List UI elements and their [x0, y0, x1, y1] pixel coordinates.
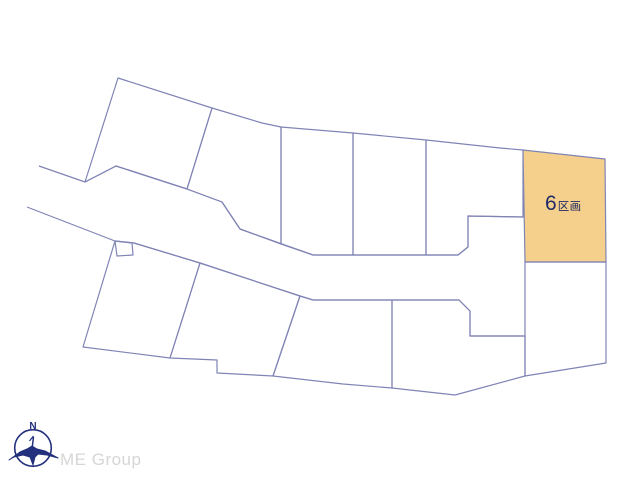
lot-number-suffix: 区画: [558, 202, 582, 214]
parcel-lower-left: [83, 241, 200, 358]
parcel-top-4: [353, 133, 426, 255]
highlighted-lot-label: 6 区画: [545, 193, 582, 214]
lot-number: 6: [545, 193, 557, 214]
lower-road-edge: [27, 207, 525, 336]
parcel-below-6: [525, 262, 606, 376]
road-notch-square: [115, 241, 133, 256]
parcel-top-3: [281, 127, 353, 255]
parcel-lower-3: [273, 296, 392, 388]
parcel-top-2: [187, 108, 281, 244]
plot-map-page: 6 区画 N ME Group: [0, 0, 640, 480]
parcel-lower-4: [392, 300, 525, 395]
parcel-top-5: [426, 140, 523, 255]
watermark-text: ME Group: [60, 451, 141, 468]
plot-map-svg: [0, 0, 640, 480]
compass-north-label: N: [26, 422, 40, 432]
parcel-lower-2: [170, 263, 300, 376]
